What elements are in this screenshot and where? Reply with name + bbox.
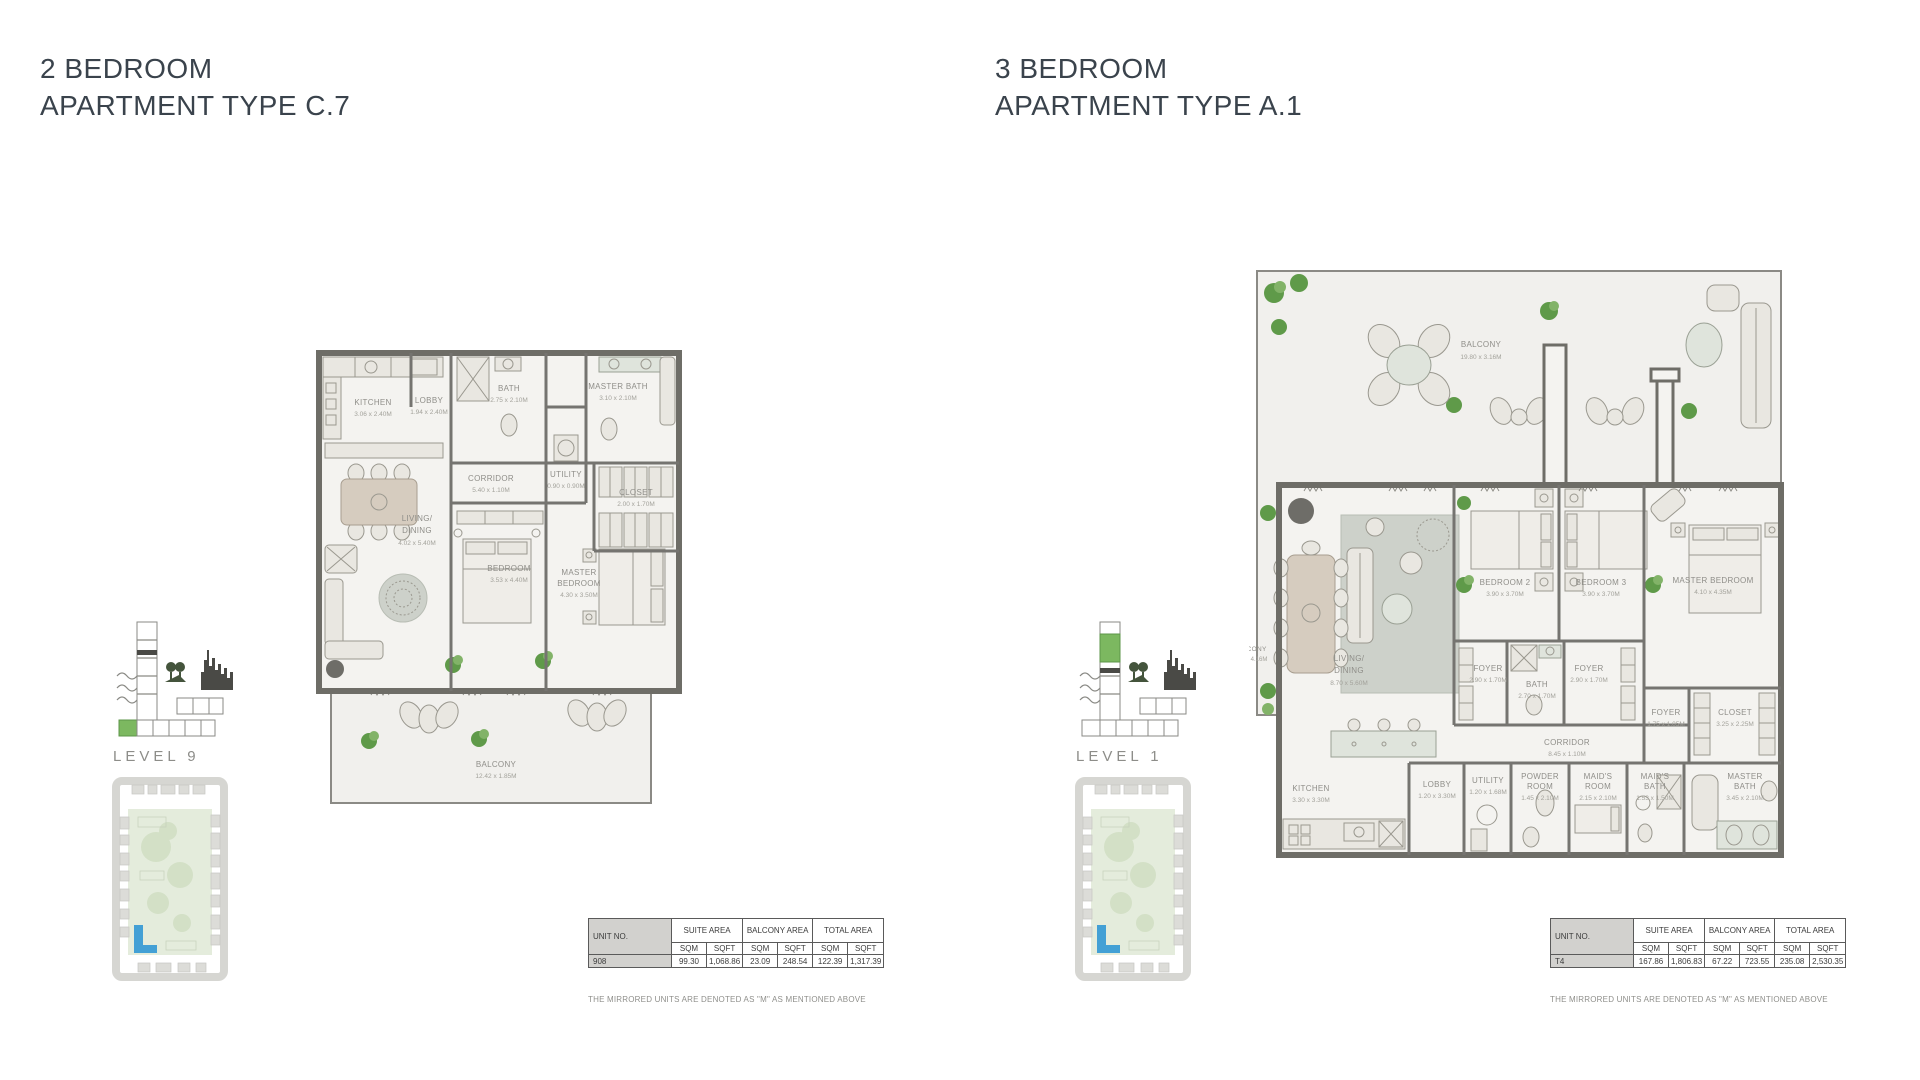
room-dims-bedroom2: 3.90 x 3.70M	[1486, 591, 1524, 598]
room-dims-foyer3: 1.75 x 1.05M	[1647, 721, 1685, 728]
room-dims-foyer1: 2.90 x 1.70M	[1469, 677, 1507, 684]
balcony-sqm: 23.09	[743, 955, 778, 968]
room-dims-lobby: 1.20 x 3.30M	[1418, 793, 1456, 800]
mirrored-note-left: THE MIRRORED UNITS ARE DENOTED AS "M" AS…	[588, 995, 866, 1004]
suite-sqm: 167.86	[1634, 955, 1669, 968]
col-total-area: TOTAL AREA	[813, 919, 884, 943]
col-sqft: SQFT	[1810, 943, 1846, 955]
title-line2: APARTMENT TYPE A.1	[995, 87, 1302, 124]
room-label-powder2: ROOM	[1527, 782, 1553, 791]
col-sqm: SQM	[1705, 943, 1740, 955]
suite-sqft: 1,806.83	[1669, 955, 1705, 968]
total-sqft: 1,317.39	[848, 955, 884, 968]
floorplan-type-c7: KITCHEN 3.06 x 2.40M LOBBY 1.94 x 2.40M …	[311, 343, 689, 835]
room-dims-master-bath: 3.45 x 2.10M	[1726, 795, 1764, 802]
room-dims-balcony-top: 19.80 x 3.16M	[1460, 354, 1501, 361]
room-label-master-bath2: BATH	[1734, 782, 1756, 791]
title-line2: APARTMENT TYPE C.7	[40, 87, 350, 124]
trees-icon	[1128, 662, 1149, 682]
room-label-closet: CLOSET	[1718, 708, 1752, 717]
col-sqm: SQM	[813, 943, 848, 955]
col-balcony-area: BALCONY AREA	[1705, 919, 1775, 943]
room-label-corridor: CORRIDOR	[1544, 738, 1590, 747]
room-dims-kitchen: 3.30 x 3.30M	[1292, 797, 1330, 804]
skyline-icon	[201, 650, 233, 690]
room-label-bath: BATH	[498, 384, 520, 393]
kitchen-counters	[1283, 819, 1405, 849]
title-line1: 2 BEDROOM	[40, 50, 350, 87]
level-label-right: LEVEL 1	[1076, 748, 1163, 765]
area-table-c7: UNIT NO. SUITE AREA BALCONY AREA TOTAL A…	[588, 918, 884, 968]
room-label-living: LIVING/	[1334, 654, 1365, 663]
room-label-maids-room2: ROOM	[1585, 782, 1611, 791]
building-column	[137, 622, 157, 720]
col-sqft: SQFT	[1669, 943, 1705, 955]
room-label-master-bedroom2: BEDROOM	[557, 579, 600, 588]
suite-sqft: 1,068.86	[707, 955, 743, 968]
col-sqft: SQFT	[707, 943, 743, 955]
room-dims-closet: 2.00 x 1.70M	[617, 501, 655, 508]
room-label-utility: UTILITY	[550, 470, 582, 479]
room-label-closet: CLOSET	[619, 488, 653, 497]
room-label-bath: BATH	[1526, 680, 1548, 689]
room-label-balcony-side: BALCONY	[1249, 646, 1267, 653]
room-label-master-bath: MASTER BATH	[588, 382, 648, 391]
col-sqm: SQM	[1775, 943, 1810, 955]
key-plan-level1	[1076, 620, 1201, 745]
total-sqm: 122.39	[813, 955, 848, 968]
title-line1: 3 BEDROOM	[995, 50, 1302, 87]
room-dims-bedroom: 3.53 x 4.40M	[490, 577, 528, 584]
col-sqft: SQFT	[1740, 943, 1775, 955]
col-sqm: SQM	[672, 943, 707, 955]
room-label-bedroom2: BEDROOM 2	[1480, 578, 1531, 587]
col-unit-no: UNIT NO.	[589, 919, 672, 955]
room-label-foyer1: FOYER	[1473, 664, 1502, 673]
room-dims-balcony-side: 1.25 x 4.16M	[1249, 657, 1267, 663]
site-map-right	[1071, 775, 1196, 985]
title-2bedroom: 2 BEDROOM APARTMENT TYPE C.7	[40, 50, 350, 124]
water-icon	[1080, 673, 1100, 703]
room-label-foyer2: FOYER	[1574, 664, 1603, 673]
room-label-bedroom3: BEDROOM 3	[1576, 578, 1627, 587]
room-label-lobby: LOBBY	[415, 396, 444, 405]
room-dims-utility: 1.20 x 1.68M	[1469, 789, 1507, 796]
total-sqm: 235.08	[1775, 955, 1810, 968]
room-label-lobby: LOBBY	[1423, 780, 1452, 789]
room-dims-living: 8.70 x 5.60M	[1330, 680, 1368, 687]
mirrored-note-right: THE MIRRORED UNITS ARE DENOTED AS "M" AS…	[1550, 995, 1828, 1004]
room-dims-maids-room: 2.15 x 2.10M	[1579, 795, 1617, 802]
room-dims-bath: 2.70 x 1.70M	[1518, 693, 1556, 700]
water-icon	[117, 673, 137, 703]
room-label-maids-bath: MAID'S	[1641, 772, 1670, 781]
col-sqft: SQFT	[848, 943, 884, 955]
room-label-living2: DINING	[402, 526, 432, 535]
col-sqft: SQFT	[778, 943, 813, 955]
floorplan-type-a1: BALCONY 19.80 x 3.16M BALCONY 1.25 x 4.1…	[1249, 263, 1789, 863]
unit-number: T4	[1551, 955, 1634, 968]
highlighted-unit	[119, 720, 137, 736]
room-dims-corridor: 5.40 x 1.10M	[472, 487, 510, 494]
col-total-area: TOTAL AREA	[1775, 919, 1846, 943]
room-label-foyer3: FOYER	[1651, 708, 1680, 717]
room-dims-lobby: 1.94 x 2.40M	[410, 409, 448, 416]
room-dims-closet: 3.25 x 2.25M	[1716, 721, 1754, 728]
col-sqm: SQM	[1634, 943, 1669, 955]
room-dims-foyer2: 2.90 x 1.70M	[1570, 677, 1608, 684]
building-row	[1082, 698, 1186, 736]
unit-number: 908	[589, 955, 672, 968]
room-dims-master-bedroom: 4.10 x 4.35M	[1694, 589, 1732, 596]
highlighted-unit	[1100, 634, 1120, 662]
room-label-utility: UTILITY	[1472, 776, 1504, 785]
room-dims-utility: 0.90 x 0.90M	[547, 483, 585, 490]
suite-sqm: 99.30	[672, 955, 707, 968]
balcony-sqft: 248.54	[778, 955, 813, 968]
room-dims-kitchen: 3.06 x 2.40M	[354, 411, 392, 418]
skyline-icon	[1164, 650, 1196, 690]
room-label-maids-bath2: BATH	[1644, 782, 1666, 791]
total-sqft: 2,530.35	[1810, 955, 1846, 968]
col-suite-area: SUITE AREA	[672, 919, 743, 943]
room-dims-corridor: 8.45 x 1.10M	[1548, 751, 1586, 758]
top-balcony-floor	[1257, 271, 1781, 485]
col-suite-area: SUITE AREA	[1634, 919, 1705, 943]
balcony-sqft: 723.55	[1740, 955, 1775, 968]
room-dims-bedroom3: 3.90 x 3.70M	[1582, 591, 1620, 598]
room-label-powder: POWDER	[1521, 772, 1559, 781]
room-dims-master-bedroom: 4.30 x 3.50M	[560, 592, 598, 599]
room-label-master-bedroom: MASTER BEDROOM	[1672, 576, 1753, 585]
room-label-maids-room: MAID'S	[1584, 772, 1613, 781]
area-table-a1: UNIT NO. SUITE AREA BALCONY AREA TOTAL A…	[1550, 918, 1846, 968]
room-label-corridor: CORRIDOR	[468, 474, 514, 483]
room-label-master-bath: MASTER	[1727, 772, 1762, 781]
room-label-balcony-top: BALCONY	[1461, 340, 1502, 349]
room-label-balcony: BALCONY	[476, 760, 517, 769]
room-dims-master-bath: 3.10 x 2.10M	[599, 395, 637, 402]
room-dims-balcony: 12.42 x 1.85M	[475, 773, 516, 780]
room-dims-bath: 2.75 x 2.10M	[490, 397, 528, 404]
trees-icon	[165, 662, 186, 682]
key-plan-level9	[113, 620, 238, 745]
building-row	[119, 698, 223, 736]
room-label-living: LIVING/	[402, 514, 433, 523]
room-dims-powder: 1.45 x 2.10M	[1521, 795, 1559, 802]
room-dims-living: 4.02 x 5.40M	[398, 540, 436, 547]
brochure-page: 2 BEDROOM APARTMENT TYPE C.7	[0, 0, 1920, 1080]
room-label-kitchen: KITCHEN	[354, 398, 391, 407]
room-label-bedroom: BEDROOM	[487, 564, 530, 573]
room-label-kitchen: KITCHEN	[1292, 784, 1329, 793]
col-balcony-area: BALCONY AREA	[743, 919, 813, 943]
room-label-living2: DINING	[1334, 666, 1364, 675]
col-sqm: SQM	[743, 943, 778, 955]
utility-fixtures	[554, 435, 578, 461]
col-unit-no: UNIT NO.	[1551, 919, 1634, 955]
maids-room-furniture	[1575, 805, 1621, 833]
room-label-master-bedroom: MASTER	[561, 568, 596, 577]
level-label-left: LEVEL 9	[113, 748, 200, 765]
room-dims-maids-bath: 1.53 x 1.50M	[1636, 795, 1674, 802]
title-3bedroom: 3 BEDROOM APARTMENT TYPE A.1	[995, 50, 1302, 124]
balcony-sqm: 67.22	[1705, 955, 1740, 968]
building-column	[1100, 622, 1120, 720]
site-map-left	[108, 775, 233, 985]
